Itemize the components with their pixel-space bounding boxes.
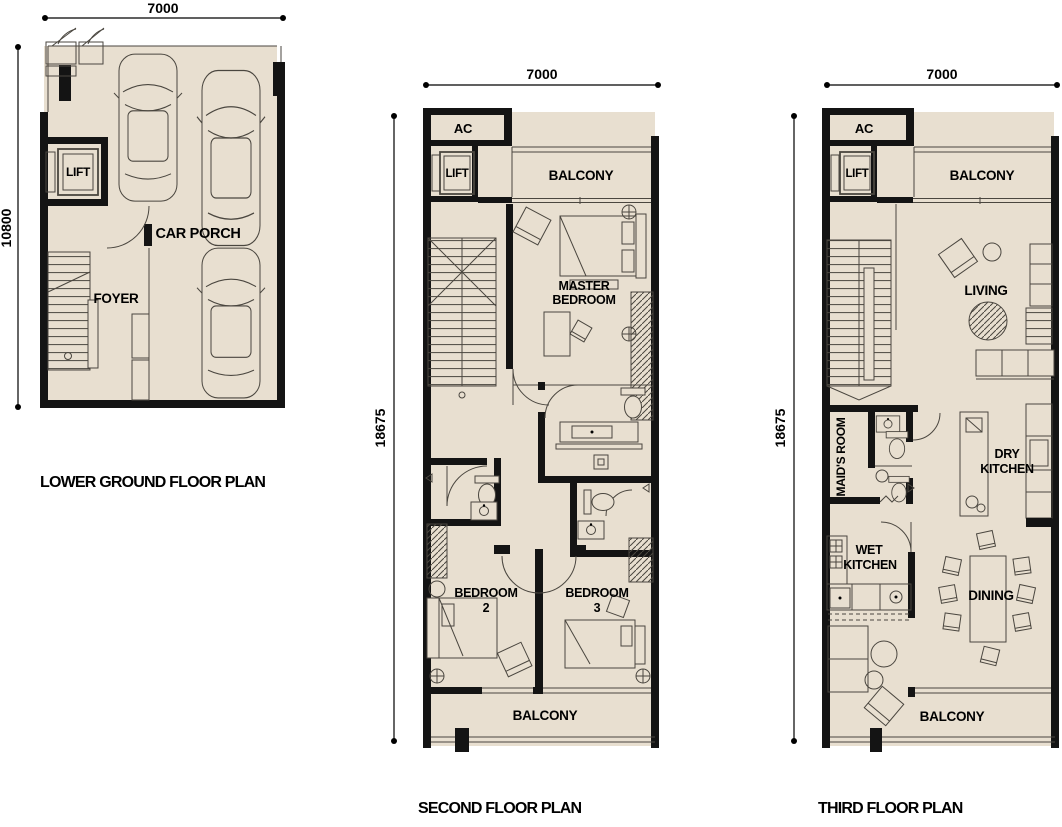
- room-label-lift: LIFT: [445, 168, 468, 180]
- dim-height-label: 10800: [0, 208, 14, 247]
- stairs-icon: [48, 252, 98, 370]
- sink-icon: [578, 521, 604, 539]
- room-label-living: LIVING: [964, 283, 1007, 298]
- car-icon: [114, 54, 182, 201]
- room-label-bedroom3: 3: [594, 601, 601, 615]
- wardrobe: [629, 538, 653, 582]
- dim-width-label: 7000: [147, 0, 178, 16]
- column-marker-icon: [636, 669, 650, 683]
- room-label-balcony-top: BALCONY: [950, 168, 1015, 183]
- dim-height-label: 18675: [372, 408, 388, 447]
- room-label-master-bedroom: BEDROOM: [552, 293, 615, 307]
- dim-width-label: 7000: [526, 66, 557, 82]
- sink-icon: [876, 416, 899, 432]
- room-label-car-porch: CAR PORCH: [155, 226, 240, 242]
- room-label-dining: DINING: [968, 588, 1013, 603]
- dim-width-label: 7000: [926, 66, 957, 82]
- sofa-icon: [976, 350, 1054, 379]
- floor-plan-sheet: 7000 10800: [0, 0, 1062, 822]
- dim-height-label: 18675: [772, 408, 788, 447]
- plan-caption: LOWER GROUND FLOOR PLAN: [40, 474, 265, 491]
- room-label-dry-kitchen: DRY: [994, 447, 1020, 461]
- bed-icon: [565, 620, 645, 668]
- room-label-lift: LIFT: [845, 168, 868, 180]
- room-label-foyer: FOYER: [93, 291, 139, 306]
- coffee-table-icon: [969, 302, 1007, 340]
- room-label-bedroom3: BEDROOM: [565, 586, 628, 600]
- room-label-bedroom2: 2: [483, 601, 490, 615]
- room-label-ac: AC: [454, 121, 473, 136]
- car-icon: [197, 71, 265, 246]
- sink-icon: [471, 502, 497, 520]
- column-marker-icon: [622, 327, 636, 341]
- stairs-icon: [827, 240, 891, 400]
- room-label-lift: LIFT: [66, 165, 91, 179]
- lower-ground-floor-plan: 7000 10800: [0, 0, 286, 491]
- room-label-wet-kitchen: WET: [856, 543, 884, 557]
- room-label-ac: AC: [855, 121, 874, 136]
- room-label-master-bedroom: MASTER: [559, 279, 610, 293]
- third-floor-plan: 7000 18675: [772, 66, 1060, 817]
- room-label-balcony-top: BALCONY: [549, 168, 614, 183]
- room-label-dry-kitchen: KITCHEN: [980, 462, 1034, 476]
- room-label-balcony-bottom: BALCONY: [920, 709, 985, 724]
- plan-caption: THIRD FLOOR PLAN: [818, 800, 963, 817]
- room-label-wet-kitchen: KITCHEN: [843, 558, 897, 572]
- car-icon: [197, 248, 265, 398]
- column-marker-icon: [622, 205, 636, 219]
- column-marker-icon: [430, 669, 444, 683]
- wardrobe: [427, 524, 447, 578]
- second-floor-plan: 7000 18675: [372, 66, 661, 817]
- room-label-bedroom2: BEDROOM: [454, 586, 517, 600]
- plan-caption: SECOND FLOOR PLAN: [418, 800, 582, 817]
- room-label-balcony-bottom: BALCONY: [513, 708, 578, 723]
- stairs-icon: [428, 238, 496, 398]
- floor-plan-drawing: 7000 10800: [0, 0, 1062, 822]
- room-label-maids-room: MAID'S ROOM: [834, 417, 848, 496]
- stairs-icon: [1026, 308, 1052, 344]
